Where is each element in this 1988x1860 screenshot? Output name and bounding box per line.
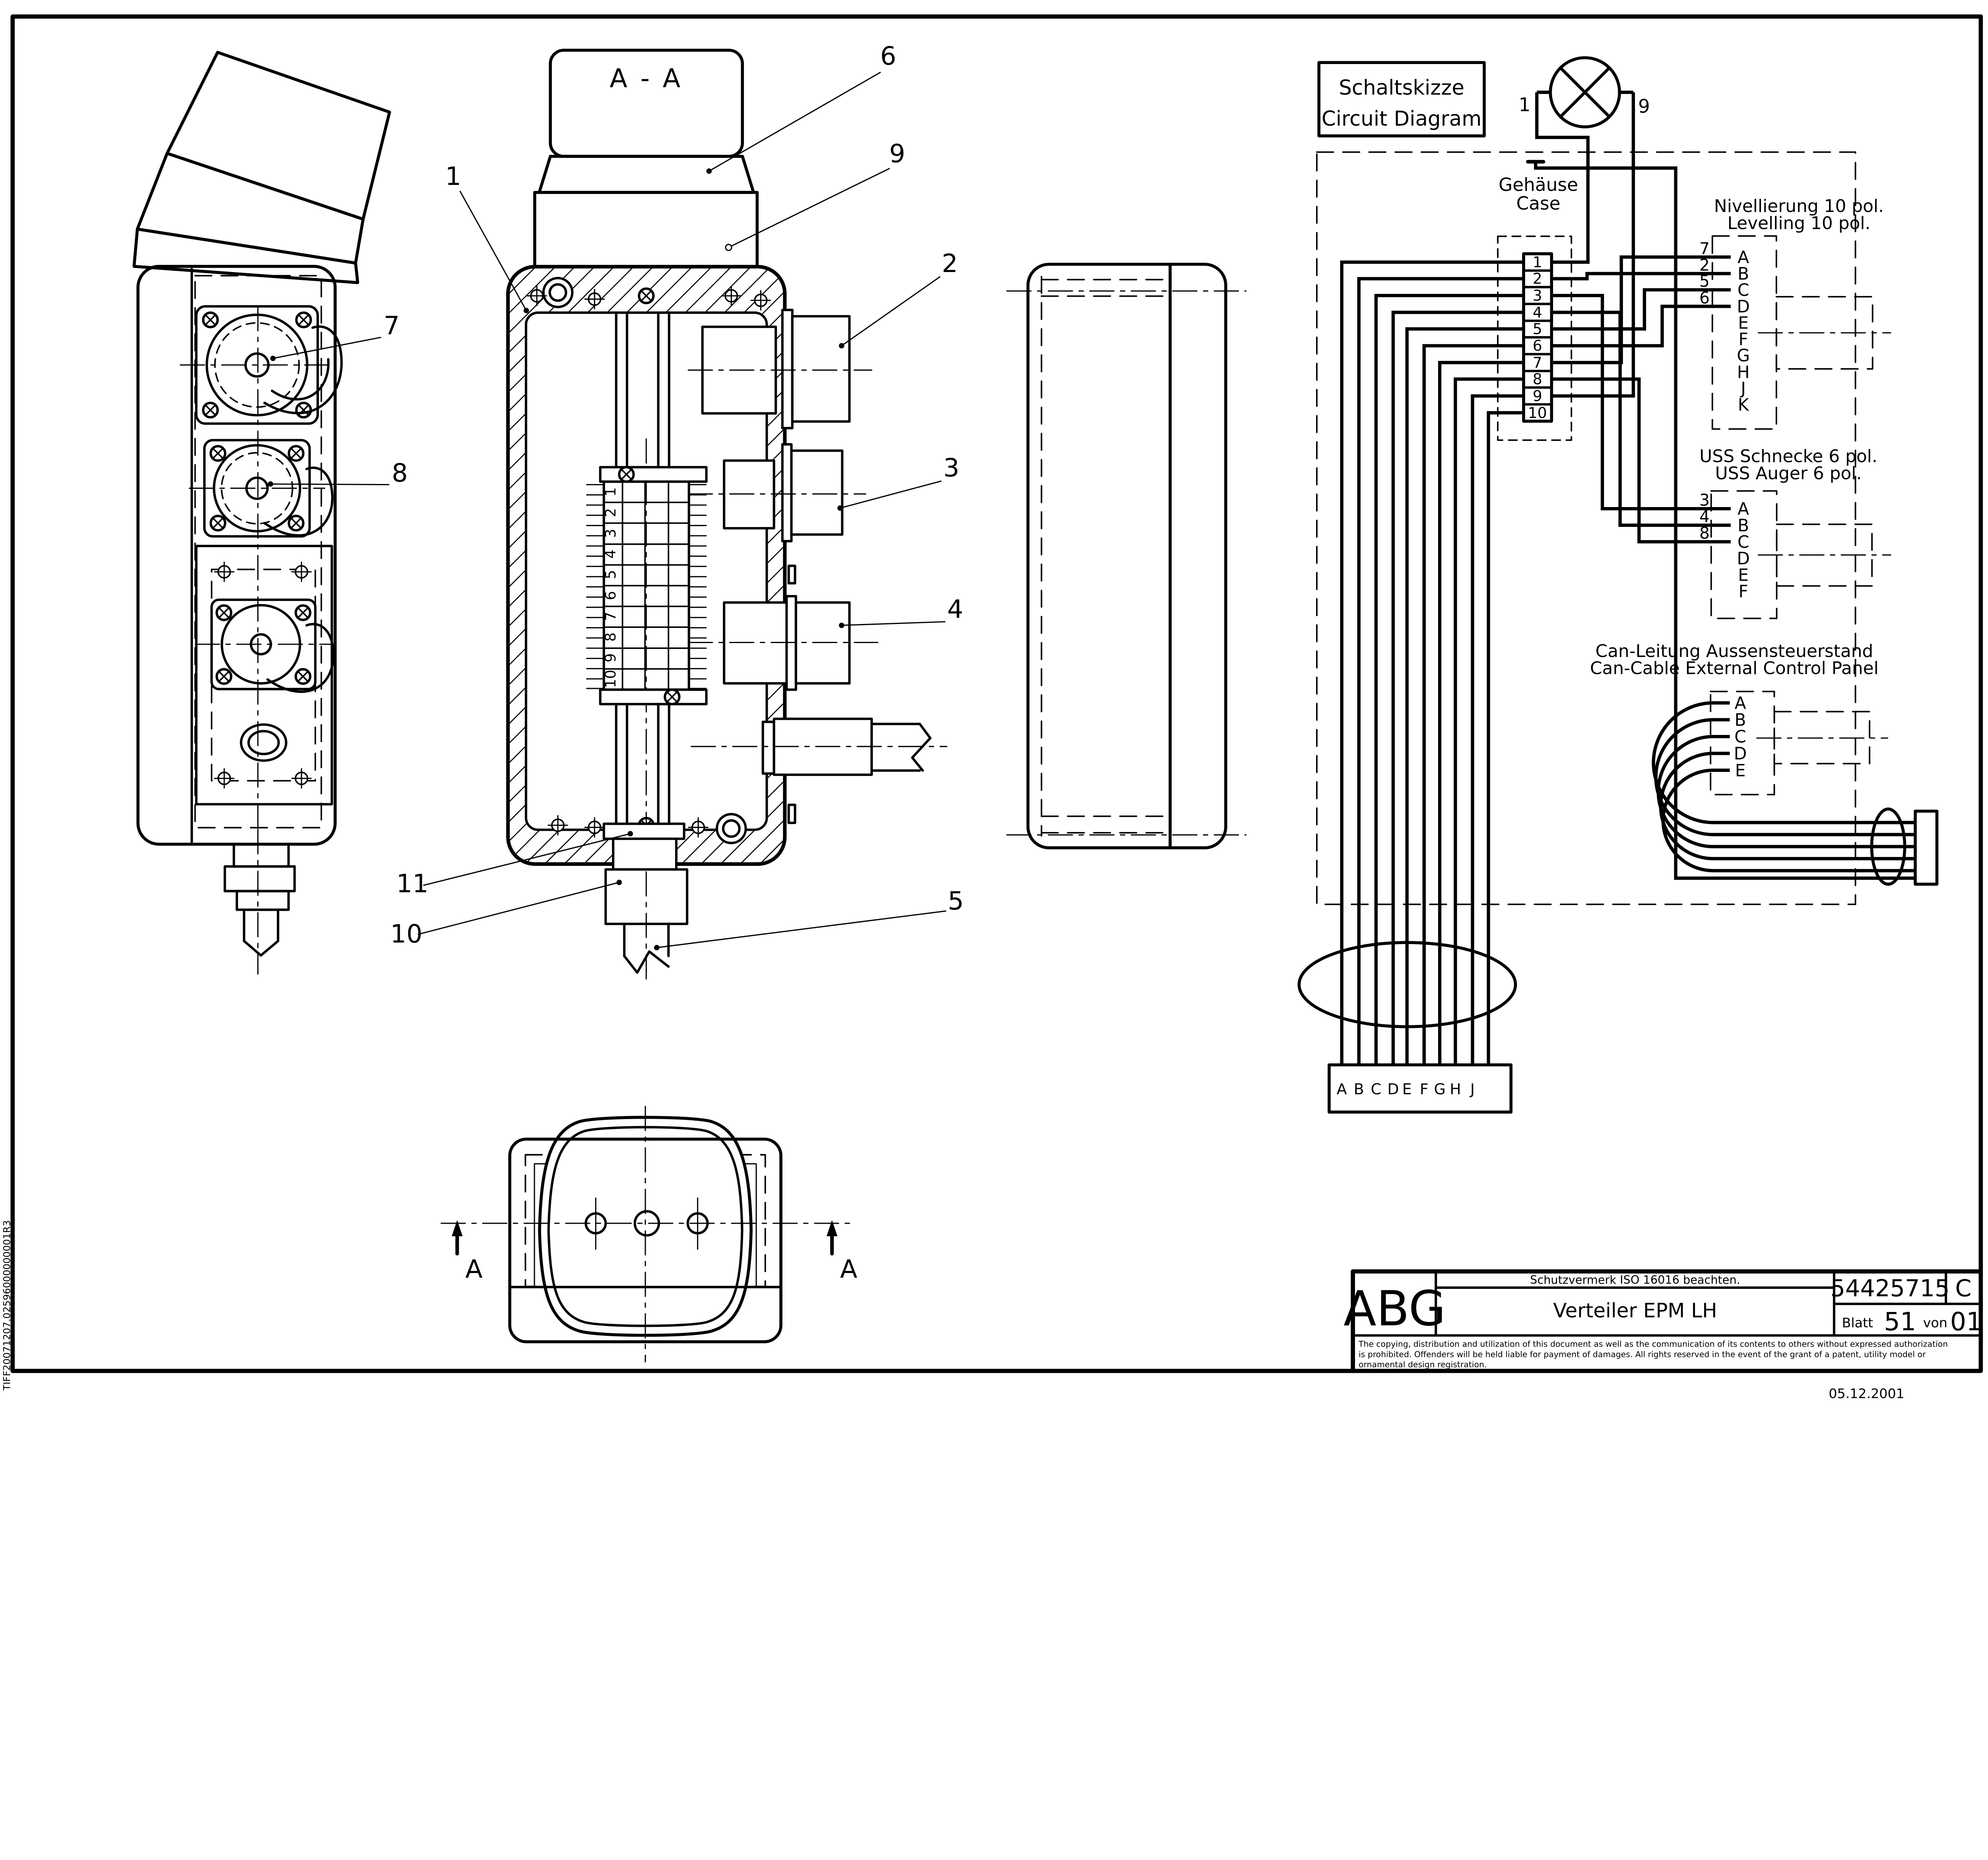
rsv-outline bbox=[1028, 264, 1225, 847]
uss-wire-3: 3 bbox=[1699, 491, 1710, 510]
cable-pin-b: B bbox=[1354, 1081, 1364, 1098]
legal-line-1: The copying, distribution and utilizatio… bbox=[1358, 1339, 1948, 1349]
gland-nut1 bbox=[234, 844, 289, 867]
cable-pin-c: C bbox=[1371, 1081, 1381, 1098]
connector7-cap-strap bbox=[264, 327, 342, 413]
can-pin-e: E bbox=[1735, 761, 1746, 780]
cable-pin-f: F bbox=[1420, 1081, 1429, 1098]
wall-stub-2 bbox=[789, 805, 795, 823]
gland-insert bbox=[613, 839, 676, 869]
rsv-dashed-horizontals bbox=[1041, 280, 1170, 833]
cable-exit-break bbox=[912, 724, 930, 770]
conn3-block bbox=[791, 451, 842, 534]
terminal-rails-bottom bbox=[616, 704, 669, 830]
cable-pin-j: J bbox=[1470, 1081, 1475, 1098]
right-side-view bbox=[1007, 264, 1246, 847]
strip-num-8: 8 bbox=[602, 632, 619, 641]
conn2-block bbox=[792, 316, 850, 422]
term-7: 7 bbox=[1533, 354, 1542, 371]
section-arrowhead-right bbox=[827, 1220, 837, 1236]
callout-10: 10 bbox=[390, 919, 423, 948]
callout-4: 4 bbox=[947, 595, 963, 624]
strip-num-2: 2 bbox=[602, 508, 619, 517]
gland-plate bbox=[604, 824, 684, 839]
terminal-top-plate bbox=[600, 467, 707, 482]
callout-3: 3 bbox=[943, 453, 959, 482]
uss-wire-8: 8 bbox=[1699, 524, 1710, 543]
sheet-number: 51 bbox=[1884, 1307, 1916, 1336]
lamp-pin-9: 9 bbox=[1638, 95, 1650, 117]
callout-11: 11 bbox=[396, 869, 429, 898]
term-6: 6 bbox=[1533, 337, 1542, 354]
term-3: 3 bbox=[1533, 287, 1542, 304]
strip-num-6: 6 bbox=[602, 591, 619, 600]
circuit-title-de: Schaltskizze bbox=[1339, 76, 1464, 100]
cable-pin-e: E bbox=[1402, 1081, 1412, 1098]
term-8: 8 bbox=[1533, 370, 1542, 388]
gland-stub-break bbox=[244, 941, 278, 955]
engineering-drawing-page: TIFF20071207.02596000000001R3 05.12.2001 bbox=[0, 0, 1988, 1406]
can-title-en: Can-Cable External Control Panel bbox=[1590, 658, 1879, 678]
legal-line-3: ornamental design registration. bbox=[1359, 1360, 1487, 1369]
callout-8: 8 bbox=[392, 458, 408, 488]
document-number: 54425715 bbox=[1831, 1275, 1950, 1302]
callout-5: 5 bbox=[948, 886, 964, 915]
cable-boss bbox=[763, 722, 774, 774]
of-label: von bbox=[1923, 1315, 1947, 1331]
callout-6: 6 bbox=[880, 41, 896, 71]
cable-exit bbox=[872, 724, 920, 770]
niv-pin-k: K bbox=[1738, 395, 1749, 415]
strip-num-10: 10 bbox=[602, 670, 619, 688]
lamp-cross bbox=[1561, 68, 1609, 117]
legal-line-2: is prohibited. Offenders will be held li… bbox=[1359, 1349, 1926, 1359]
uss-pin-f: F bbox=[1738, 582, 1748, 601]
cable-pin-d: D bbox=[1387, 1081, 1399, 1098]
date-stamp: 05.12.2001 bbox=[1829, 1386, 1904, 1401]
drawing-border bbox=[13, 17, 1981, 1371]
case-label-en: Case bbox=[1516, 193, 1561, 214]
title-block: ABG Schutzvermerk ISO 16016 beachten. Ve… bbox=[1343, 1271, 1982, 1371]
strip-num-1: 1 bbox=[602, 487, 619, 496]
strip-num-3: 3 bbox=[602, 529, 619, 538]
company-logo: ABG bbox=[1343, 1281, 1446, 1337]
film-code: TIFF20071207.02596000000001R3 bbox=[2, 1220, 13, 1391]
term-2: 2 bbox=[1533, 270, 1542, 288]
wires-can bbox=[1654, 703, 1915, 871]
conn3-flange bbox=[782, 444, 792, 541]
sheet-label: Blatt bbox=[1842, 1315, 1873, 1331]
cap-top-face bbox=[167, 52, 389, 220]
strip-num-9: 9 bbox=[602, 653, 619, 663]
case-label-de: Gehäuse bbox=[1499, 174, 1578, 195]
cap-skirt bbox=[134, 229, 357, 283]
cable-pin-a: A bbox=[1337, 1081, 1347, 1098]
callout-9: 9 bbox=[889, 139, 905, 168]
callout-7: 7 bbox=[384, 311, 400, 340]
gland-opening-inner bbox=[248, 731, 279, 754]
strip-num-4: 4 bbox=[602, 550, 619, 559]
term-9: 9 bbox=[1533, 387, 1542, 404]
wall-stub-1 bbox=[789, 566, 795, 583]
protection-notice: Schutzvermerk ISO 16016 beachten. bbox=[1530, 1273, 1740, 1287]
niv-title-en: Levelling 10 pol. bbox=[1727, 213, 1870, 233]
section-view: A - A 1 2 3 4 5 6 7 8 9 10 bbox=[390, 41, 964, 980]
gland-nut3 bbox=[237, 891, 289, 910]
uss-wire-4: 4 bbox=[1699, 507, 1710, 526]
section-arrowhead-left bbox=[452, 1220, 462, 1236]
revision-letter: C bbox=[1955, 1275, 1971, 1302]
term-1: 1 bbox=[1533, 253, 1542, 271]
terminal-teeth-left bbox=[587, 485, 604, 689]
cable-pin-h: H bbox=[1450, 1081, 1461, 1098]
term-5: 5 bbox=[1533, 320, 1542, 338]
terminal-bottom-plate bbox=[600, 690, 707, 704]
strip-num-5: 5 bbox=[602, 570, 619, 579]
term-4: 4 bbox=[1533, 303, 1542, 321]
callout-1: 1 bbox=[445, 161, 461, 191]
strip-num-7: 7 bbox=[602, 612, 619, 621]
section-cap-taper bbox=[539, 156, 753, 192]
section-label-right: A bbox=[840, 1254, 857, 1284]
niv-wire-6: 6 bbox=[1699, 288, 1710, 307]
gland-nut2 bbox=[225, 867, 294, 891]
circuit-diagram: Schaltskizze Circuit Diagram 1 9 Gehäuse… bbox=[1299, 58, 1937, 1112]
term-10: 10 bbox=[1528, 404, 1547, 422]
terminal-teeth-right bbox=[689, 485, 706, 689]
lamp-pin-1: 1 bbox=[1519, 94, 1531, 116]
circuit-title-en: Circuit Diagram bbox=[1322, 107, 1481, 131]
of-total: 01 bbox=[1950, 1307, 1982, 1336]
niv-wire-7: 7 bbox=[1699, 239, 1710, 258]
cable-pin-g: G bbox=[1434, 1081, 1445, 1098]
side-view: 7 8 bbox=[134, 52, 408, 974]
can-cable-plug bbox=[1915, 811, 1937, 884]
section-label-left: A bbox=[465, 1254, 482, 1284]
section-cap-base bbox=[535, 192, 757, 267]
conn2-flange bbox=[782, 310, 792, 428]
gland-stub bbox=[244, 910, 278, 941]
uss-title-en: USS Auger 6 pol. bbox=[1715, 463, 1862, 484]
niv-wire-5: 5 bbox=[1699, 272, 1710, 291]
callout-2: 2 bbox=[942, 249, 958, 278]
drawing-title: Verteiler EPM LH bbox=[1553, 1299, 1717, 1322]
bottom-view: A A bbox=[441, 1106, 858, 1362]
terminal-rails-top bbox=[616, 313, 669, 467]
section-title: A - A bbox=[610, 64, 683, 93]
